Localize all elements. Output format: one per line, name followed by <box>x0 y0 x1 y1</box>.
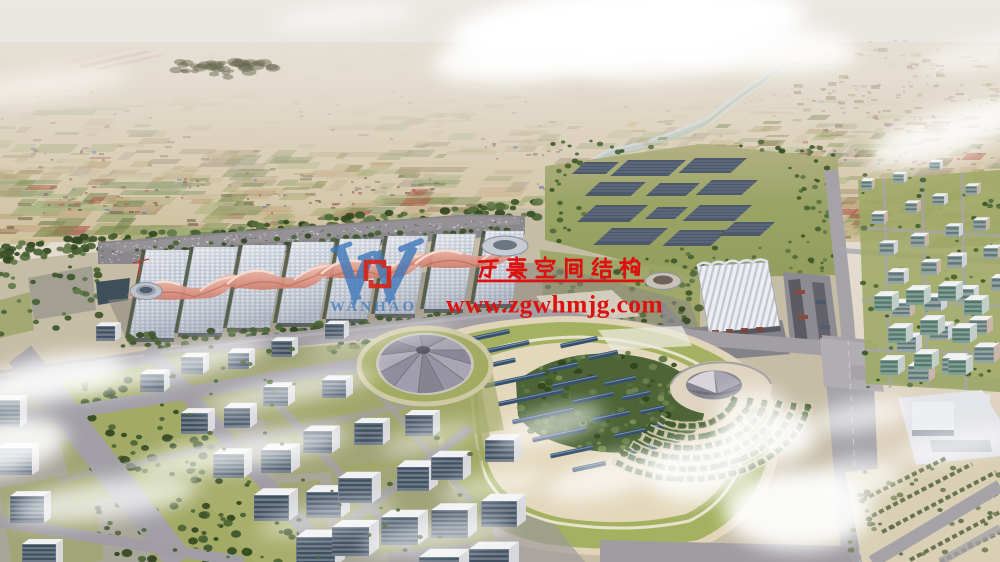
svg-text:WANHAO: WANHAO <box>330 299 417 315</box>
svg-text:www.zgwhmjg.com: www.zgwhmjg.com <box>446 290 663 319</box>
